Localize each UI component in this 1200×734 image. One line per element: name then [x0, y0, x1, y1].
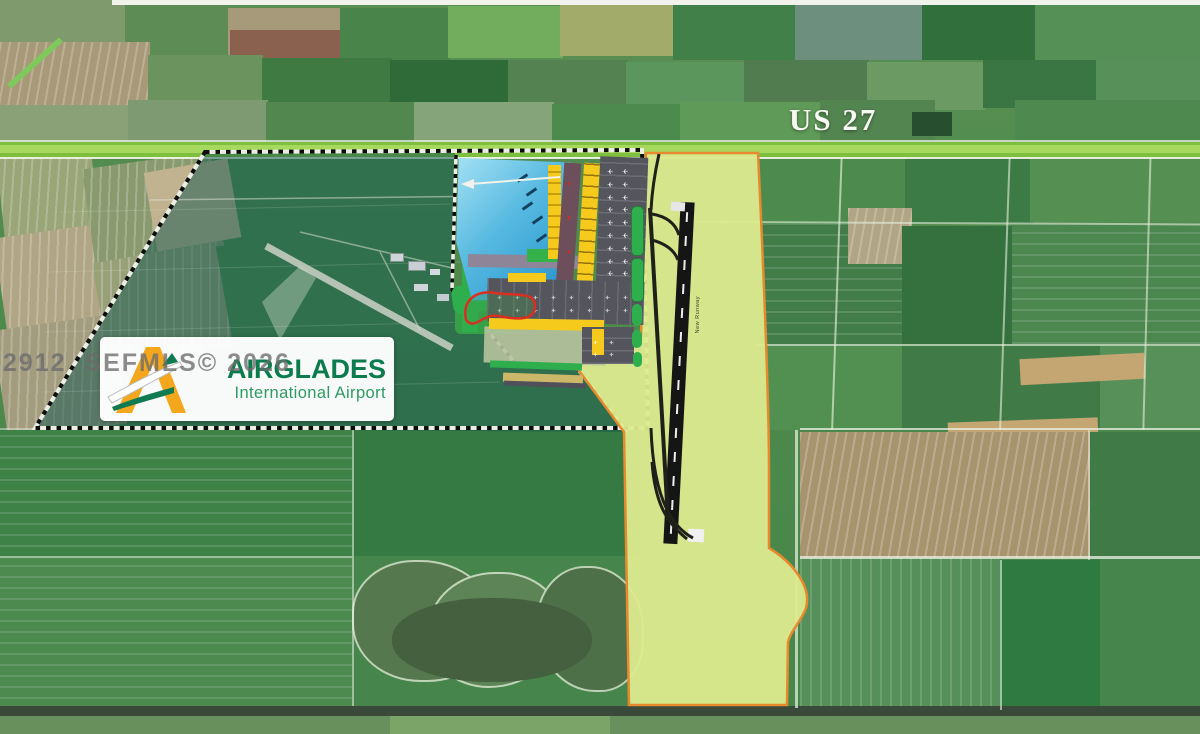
highway-label: US 27: [789, 102, 877, 138]
aerial-site-map: ✈✈✈✈✈✈✈✈✈✈✈✈✈✈✈✈✈✈✈✈✈✈✈✈✈✈✈✈✈✈✈✈✈✈✈✈✈✈▼▼…: [0, 0, 1200, 734]
mls-watermark: 32912 SEFMLS© 2026: [0, 349, 291, 378]
logo-subtitle: International Airport: [188, 385, 386, 402]
new-runway-label: New Runway: [695, 296, 701, 333]
